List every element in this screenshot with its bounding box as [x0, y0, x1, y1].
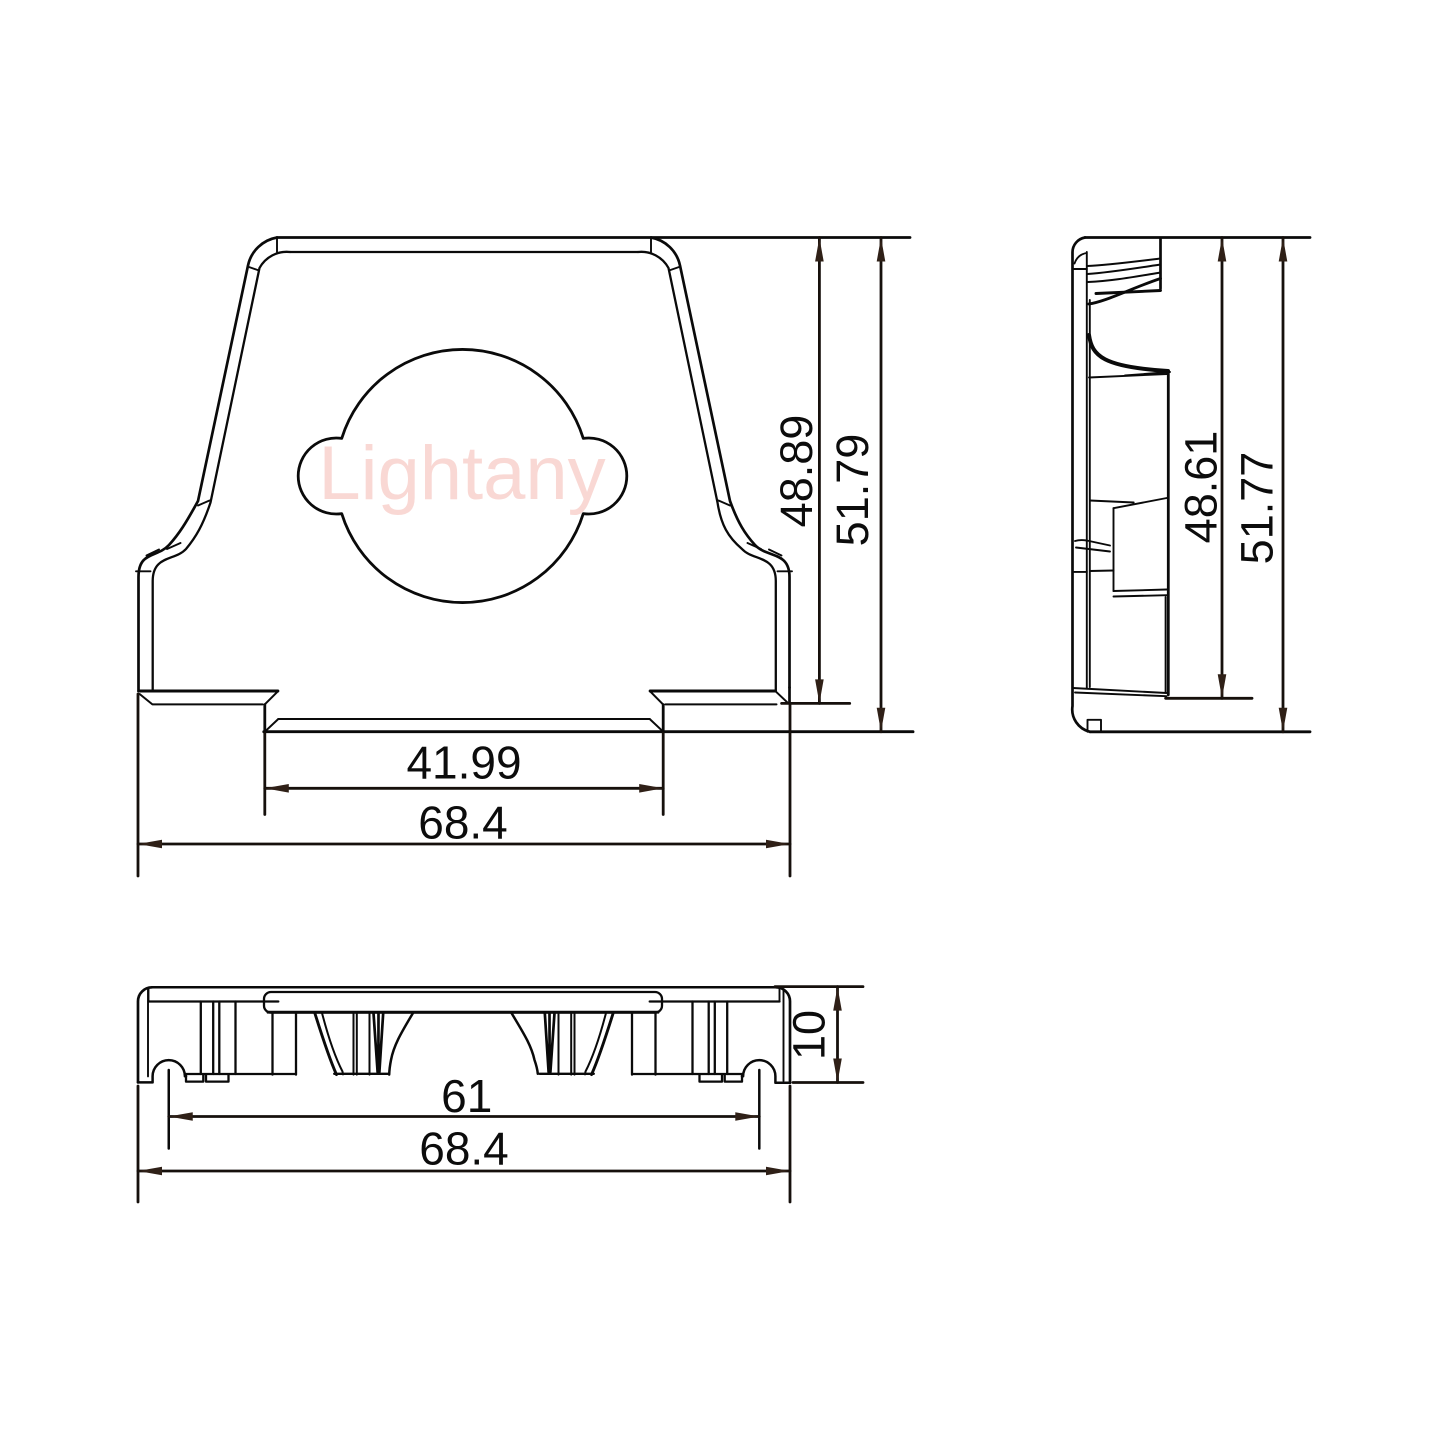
svg-text:48.61: 48.61 — [1176, 431, 1227, 544]
svg-text:51.77: 51.77 — [1232, 452, 1283, 565]
svg-text:10: 10 — [784, 1010, 835, 1060]
svg-text:61: 61 — [441, 1070, 492, 1122]
svg-text:41.99: 41.99 — [406, 737, 521, 789]
svg-text:48.89: 48.89 — [771, 415, 822, 528]
svg-text:68.4: 68.4 — [419, 1123, 509, 1175]
svg-text:68.4: 68.4 — [418, 797, 508, 849]
svg-text:51.79: 51.79 — [827, 434, 878, 547]
svg-text:Lightany: Lightany — [318, 431, 605, 516]
